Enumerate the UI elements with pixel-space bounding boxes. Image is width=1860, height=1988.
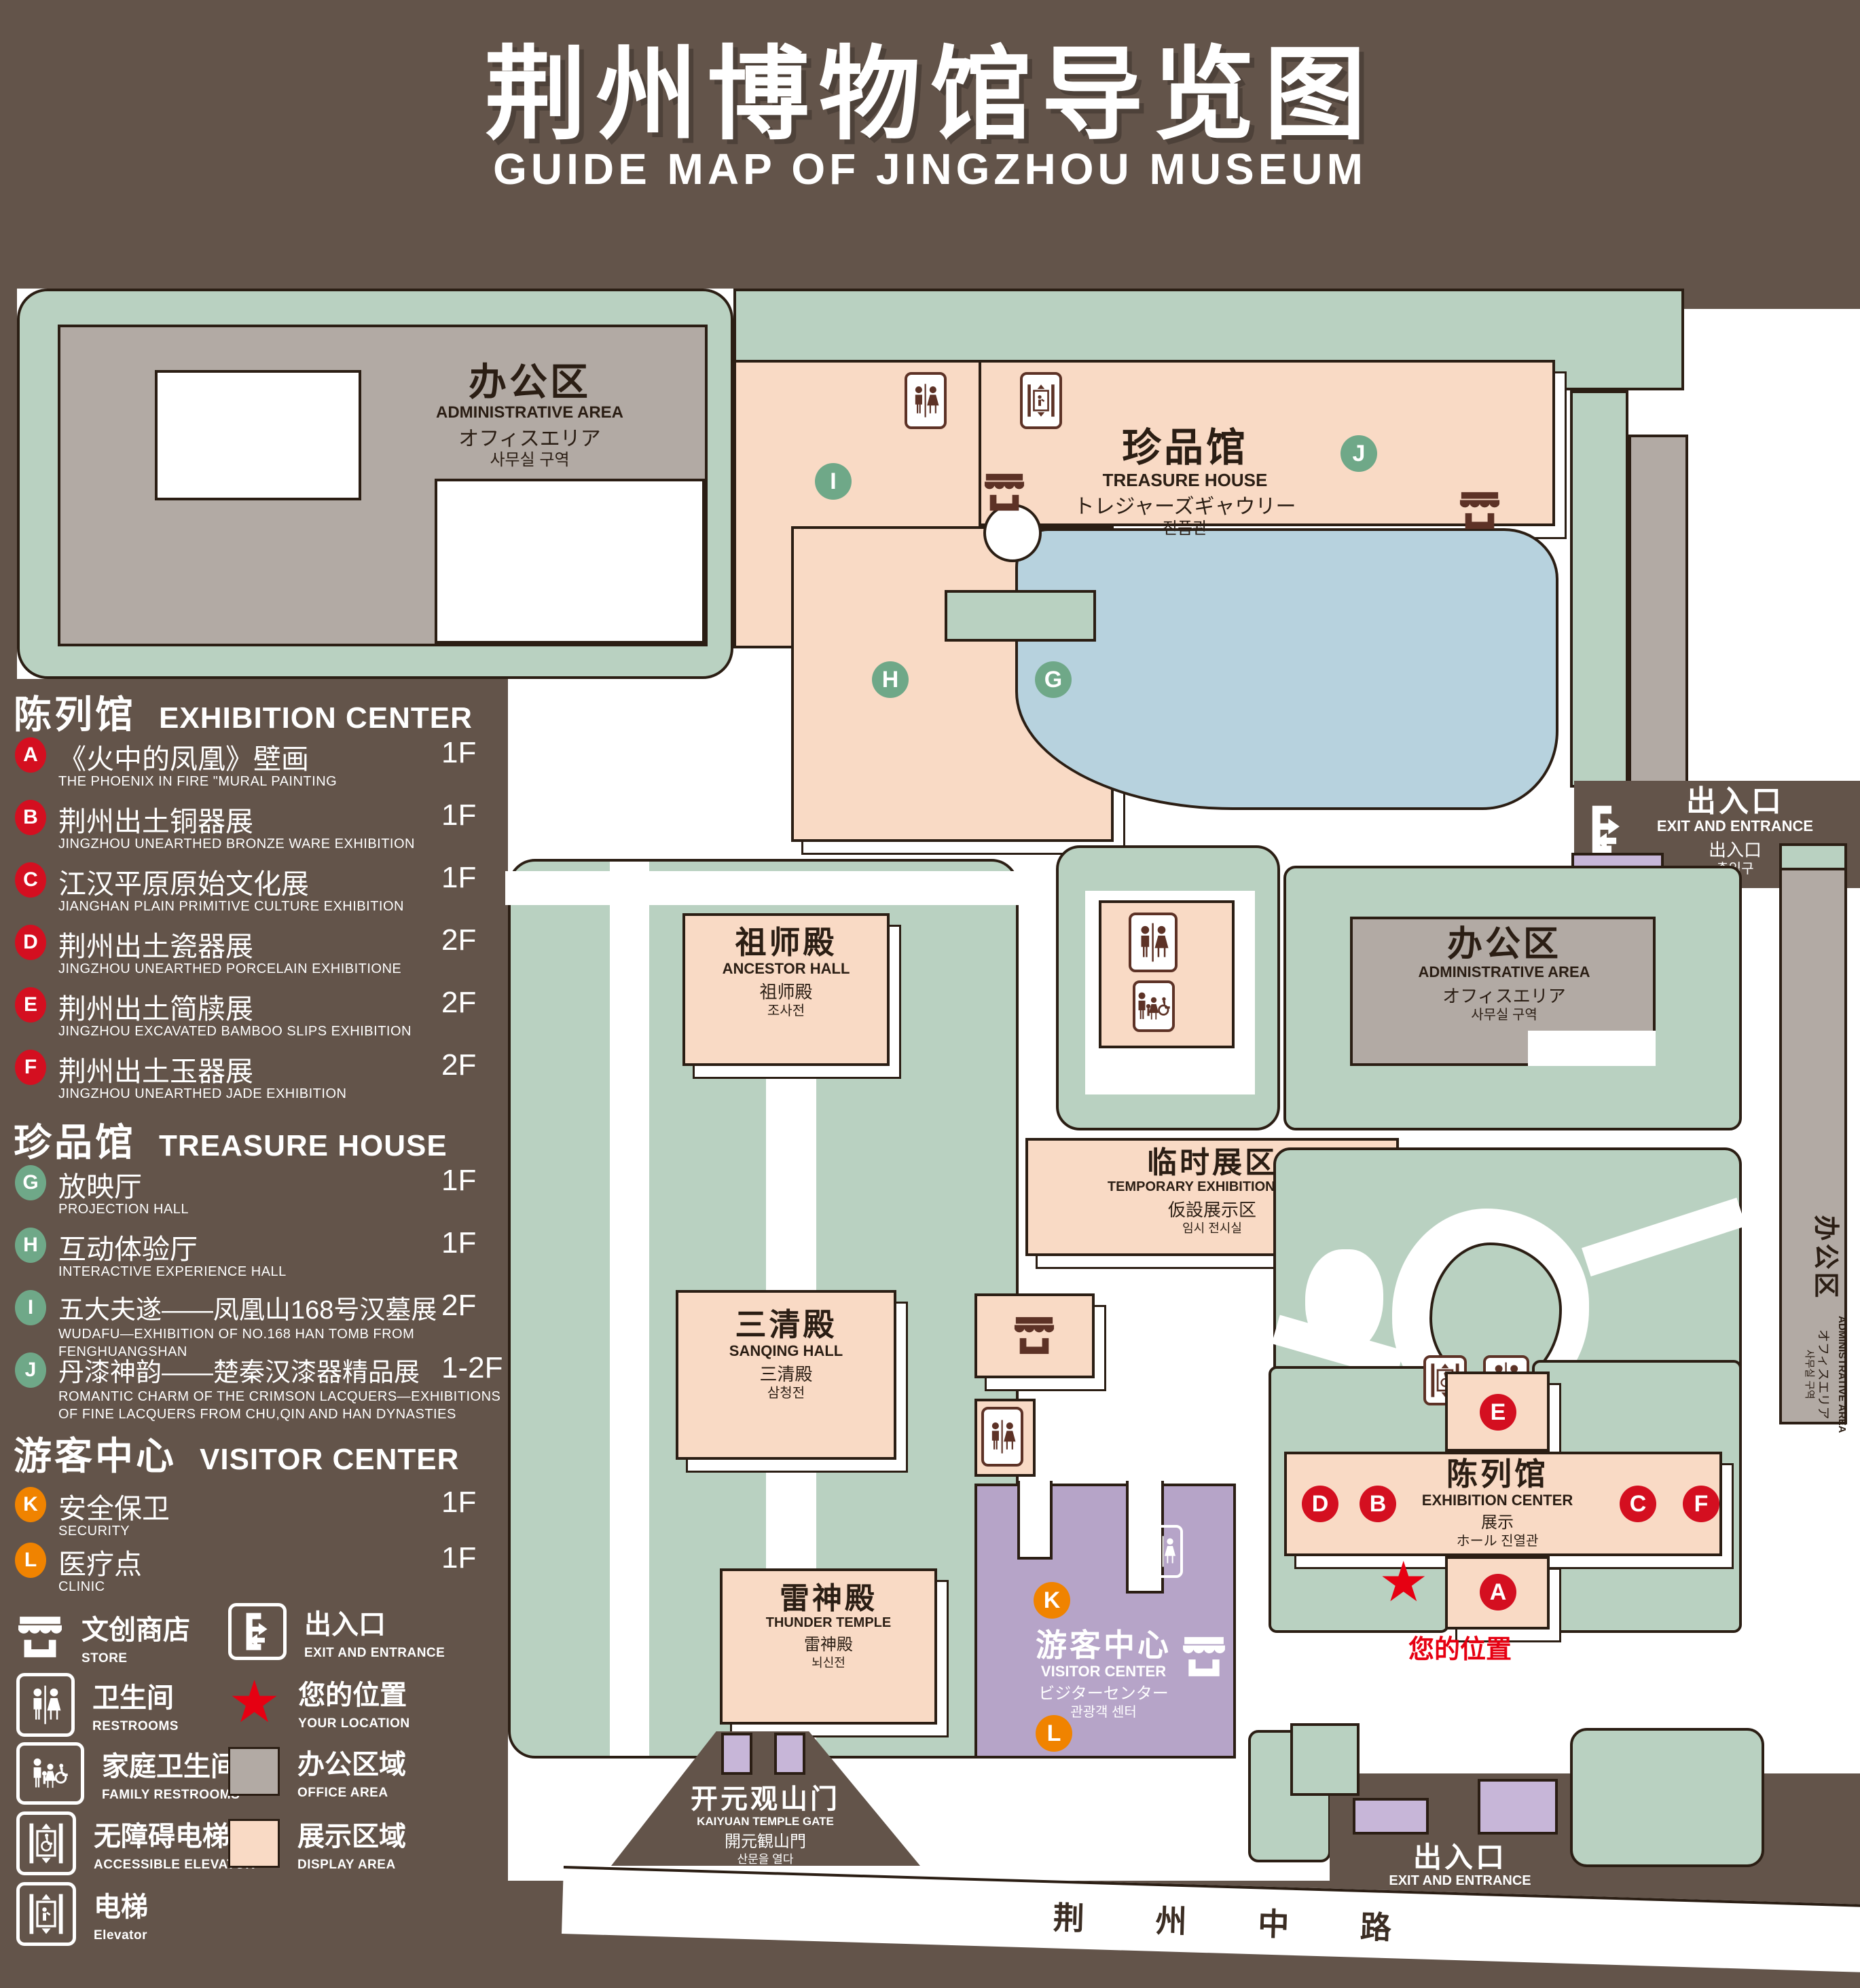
marker-G: G (1035, 661, 1072, 698)
legend-D-en: JINGZHOU UNEARTHED PORCELAIN EXHIBITIONE (58, 960, 401, 978)
label-sanqing-zh: 三清殿 (678, 1308, 894, 1343)
path-vertical-west (610, 862, 649, 1756)
label-gate-ko: 산문을 열다 (643, 1853, 888, 1866)
label-admin-strip-zh: 办公区 (1810, 1215, 1840, 1301)
elevator-icon (16, 1882, 76, 1946)
label-ancestor-zh: 祖师殿 (685, 925, 887, 961)
label-admin-nw-en: ADMINISTRATIVE AREA (380, 404, 679, 422)
label-admin-strip-en: ADMINISTRATIVE AREA (1836, 1316, 1847, 1433)
store-icon (1182, 1635, 1226, 1678)
label-treasure-zh: 珍品馆 (1015, 426, 1355, 471)
label-admin-east-ja: オフィスエリア (1355, 987, 1654, 1006)
legend-item-D: D 荆州出土瓷器展 2F JINGZHOU UNEARTHED PORCELAI… (14, 925, 516, 986)
green-block-gateeast (1570, 1728, 1764, 1867)
legend-display-zh: 展示区域 (297, 1822, 406, 1852)
legend-F-en: JINGZHOU UNEARTHED JADE EXHIBITION (58, 1085, 346, 1103)
label-admin-strip-ja: オフィスエリア (1816, 1316, 1830, 1433)
legend-E-floor: 2F (441, 986, 476, 1020)
legend-badge-F: F (15, 1050, 46, 1085)
legend-symbol-elevator: 电梯Elevator (16, 1882, 148, 1946)
legend-L-floor: 1F (441, 1541, 476, 1575)
gate-kaiyuan-door (721, 1733, 752, 1775)
legend-symbol-display: 展示区域DISPLAY AREA (228, 1814, 406, 1873)
legend-B-zh: 荆州出土铜器展 (58, 798, 253, 839)
lake-terrace (945, 590, 1096, 642)
legend-item-A: A 《火中的凤凰》壁画 1F THE PHOENIX IN FIRE "MURA… (14, 737, 516, 798)
label-thunder-ja: 雷神殿 (723, 1636, 934, 1655)
label-admin-nw-ja: オフィスエリア (380, 428, 679, 451)
legend-symbol-accessible: 无障碍电梯ACCESSIBLE ELEVATOR (16, 1811, 255, 1875)
legend-item-G: G 放映厅 1F PROJECTION HALL (14, 1165, 516, 1226)
store-icon (1013, 1315, 1055, 1356)
store-icon (1459, 490, 1501, 531)
legend-office-en: OFFICE AREA (297, 1786, 406, 1801)
legend-H-zh: 互动体验厅 (58, 1226, 198, 1267)
marker-L: L (1036, 1715, 1072, 1752)
legend-location-en: YOUR LOCATION (298, 1716, 409, 1731)
label-exit-ne-zh: 出入口 (1630, 785, 1840, 818)
label-admin-east-zh: 办公区 (1355, 925, 1654, 964)
legend-store-en: STORE (81, 1651, 190, 1666)
legend-elevator-en: Elevator (94, 1928, 148, 1943)
legend-section-exhibition-en: EXHIBITION CENTER (159, 701, 473, 735)
your-location-star-icon: ★ (228, 1673, 280, 1731)
legend-store-zh: 文创商店 (81, 1615, 190, 1645)
marker-E: E (1480, 1394, 1516, 1431)
your-location-label: 您的位置 (1379, 1628, 1542, 1665)
legend-item-I: I 五大夫遂——凤凰山168号汉墓展 2F WUDAFU—EXHIBITION … (14, 1290, 516, 1351)
legend-item-E: E 荆州出土简牍展 2F JINGZHOU EXCAVATED BAMBOO S… (14, 987, 516, 1048)
green-cap-east-strip (1779, 843, 1847, 870)
legend-item-K: K 安全保卫 1F SECURITY (14, 1487, 516, 1548)
legend-D-floor: 2F (441, 923, 476, 957)
legend-symbol-store: 文创商店STORE (16, 1608, 190, 1666)
exit-icon (228, 1603, 287, 1660)
legend-F-zh: 荆州出土玉器展 (58, 1048, 253, 1089)
label-ancestor-en: ANCESTOR HALL (685, 961, 887, 978)
label-treasure-en: TREASURE HOUSE (1015, 471, 1355, 490)
exit-icon (1580, 803, 1634, 857)
label-admin-east-ko: 사무실 구역 (1355, 1008, 1654, 1023)
legend-I-floor: 2F (441, 1289, 476, 1323)
legend-K-en: SECURITY (58, 1522, 130, 1540)
marker-B: B (1360, 1486, 1396, 1522)
building-thunder-temple: 雷神殿 THUNDER TEMPLE 雷神殿 뇌신전 (720, 1568, 937, 1725)
label-gate-en: KAIYUAN TEMPLE GATE (643, 1815, 888, 1828)
gate-kaiyuan-door (774, 1733, 805, 1775)
label-visitor-ko: 관광객 센터 (988, 1705, 1219, 1720)
legend-H-floor: 1F (441, 1226, 476, 1260)
gate-south-west (1353, 1798, 1429, 1835)
label-visitor-ja: ビジターセンター (988, 1685, 1219, 1704)
legend-badge-C: C (15, 862, 46, 898)
elevator-icon (1020, 372, 1062, 429)
marker-K: K (1034, 1582, 1070, 1619)
legend-badge-I: I (15, 1290, 46, 1325)
path-vertical-2 (766, 1463, 816, 1572)
legend-section-exhibition: 陈列馆 EXHIBITION CENTER (14, 684, 473, 739)
legend-J-zh: 丹漆神韵——楚秦汉漆器精品展 (58, 1351, 420, 1388)
accessible-elevator-icon (16, 1811, 76, 1875)
family-restroom-icon (1133, 980, 1175, 1032)
legend-section-treasure-zh: 珍品馆 (14, 1112, 136, 1167)
display-area-swatch (228, 1819, 280, 1868)
marker-D: D (1302, 1486, 1338, 1522)
legend-elevator-zh: 电梯 (94, 1892, 148, 1922)
legend-display-en: DISPLAY AREA (297, 1858, 406, 1873)
legend-item-B: B 荆州出土铜器展 1F JINGZHOU UNEARTHED BRONZE W… (14, 800, 516, 861)
label-treasure-ja: トレジャーズギャウリー (1015, 496, 1355, 519)
page-subtitle: GUIDE MAP OF JINGZHOU MUSEUM (0, 144, 1860, 194)
restroom-icon (16, 1673, 75, 1737)
legend-exit-en: EXIT AND ENTRANCE (304, 1646, 445, 1661)
legend-A-zh: 《火中的凤凰》壁画 (58, 736, 309, 777)
label-sanqing: 三清殿 SANQING HALL 三清殿 삼청전 (678, 1308, 894, 1401)
path-horizontal (505, 871, 1021, 905)
legend-K-floor: 1F (441, 1486, 476, 1520)
legend-section-visitor-en: VISITOR CENTER (200, 1443, 459, 1477)
office-area-swatch (228, 1747, 280, 1796)
legend-symbol-restrooms: 卫生间RESTROOMS (16, 1673, 179, 1737)
label-exit-south-zh: 出入口 (1355, 1841, 1565, 1873)
label-thunder: 雷神殿 THUNDER TEMPLE 雷神殿 뇌신전 (723, 1582, 934, 1670)
label-thunder-ko: 뇌신전 (723, 1656, 934, 1670)
your-location-star: ★ (1379, 1555, 1429, 1610)
legend-family-en: FAMILY RESTROOMS (102, 1788, 240, 1803)
label-exit-ne-en: EXIT AND ENTRANCE (1630, 818, 1840, 835)
label-sanqing-ko: 삼청전 (678, 1386, 894, 1401)
legend-item-L: L 医疗点 1F CLINIC (14, 1543, 516, 1604)
label-ancestor-ja: 祖师殿 (685, 982, 887, 1002)
label-admin-nw-zh: 办公区 (380, 361, 679, 404)
marker-I: I (815, 463, 852, 500)
marker-A: A (1480, 1574, 1516, 1610)
label-sanqing-ja: 三清殿 (678, 1365, 894, 1384)
legend-section-visitor-zh: 游客中心 (14, 1426, 177, 1481)
legend-symbol-family: 家庭卫生间FAMILY RESTROOMS (16, 1742, 240, 1805)
legend-B-en: JINGZHOU UNEARTHED BRONZE WARE EXHIBITIO… (58, 835, 415, 853)
legend-restrooms-en: RESTROOMS (92, 1719, 179, 1734)
family-restroom-icon (16, 1742, 84, 1805)
legend-C-floor: 1F (441, 861, 476, 895)
legend-badge-L: L (15, 1543, 46, 1578)
legend-badge-A: A (15, 737, 46, 773)
legend-A-en: THE PHOENIX IN FIRE "MURAL PAINTING (58, 773, 337, 790)
legend-badge-H: H (15, 1228, 46, 1263)
legend-C-zh: 江汉平原原始文化展 (58, 861, 309, 902)
label-admin-nw: 办公区 ADMINISTRATIVE AREA オフィスエリア 사무실 구역 (380, 361, 679, 470)
label-thunder-zh: 雷神殿 (723, 1582, 934, 1615)
admin-east-cutout (1528, 1031, 1656, 1066)
admin-nw-courtyard-cutout2 (435, 479, 705, 644)
legend-badge-B: B (15, 800, 46, 835)
legend-symbol-location: ★ 您的位置YOUR LOCATION (228, 1673, 410, 1731)
restroom-icon (1144, 1525, 1183, 1578)
label-gate-ja: 開元観山門 (643, 1833, 888, 1852)
legend-item-F: F 荆州出土玉器展 2F JINGZHOU UNEARTHED JADE EXH… (14, 1050, 516, 1111)
restroom-icon (905, 372, 947, 429)
legend-E-en: JINGZHOU EXCAVATED BAMBOO SLIPS EXHIBITI… (58, 1023, 412, 1040)
page-title: 荆州博物馆导览图 (0, 12, 1860, 160)
legend-G-zh: 放映厅 (58, 1164, 142, 1204)
legend-G-floor: 1F (441, 1164, 476, 1198)
legend-I-zh: 五大夫遂——凤凰山168号汉墓展 (58, 1289, 437, 1326)
marker-J: J (1341, 435, 1377, 472)
legend-J-floor: 1-2F (441, 1351, 503, 1385)
building-sanqing-hall: 三清殿 SANQING HALL 三清殿 삼청전 (676, 1290, 896, 1460)
legend-symbol-exit: 出入口EXIT AND ENTRANCE (228, 1602, 445, 1661)
marker-F: F (1683, 1486, 1719, 1522)
restroom-icon (1129, 913, 1178, 972)
label-treasure: 珍品馆 TREASURE HOUSE トレジャーズギャウリー 진품관 (1015, 426, 1355, 538)
legend-restrooms-zh: 卫生间 (92, 1683, 174, 1713)
building-ancestor-hall: 祖师殿 ANCESTOR HALL 祖师殿 조사전 (682, 913, 890, 1066)
green-column-ne (1570, 390, 1628, 788)
visitor-center-notch (1017, 1481, 1053, 1560)
label-sanqing-en: SANQING HALL (678, 1343, 894, 1360)
label-ancestor: 祖师殿 ANCESTOR HALL 祖师殿 조사전 (685, 925, 887, 1019)
legend-F-floor: 2F (441, 1048, 476, 1082)
legend-family-zh: 家庭卫生间 (102, 1752, 238, 1782)
path-vertical-1 (766, 1069, 816, 1293)
legend-J-en: ROMANTIC CHARM OF THE CRIMSON LACQUERS—E… (58, 1388, 500, 1423)
legend-location-zh: 您的位置 (298, 1680, 407, 1710)
label-exit-south-en: EXIT AND ENTRANCE (1355, 1873, 1565, 1888)
legend-badge-E: E (15, 987, 46, 1023)
legend-L-en: CLINIC (58, 1578, 105, 1596)
legend-L-zh: 医疗点 (58, 1541, 142, 1582)
legend-E-zh: 荆州出土简牍展 (58, 986, 253, 1027)
legend-item-H: H 互动体验厅 1F INTERACTIVE EXPERIENCE HALL (14, 1228, 516, 1289)
legend-section-treasure: 珍品馆 TREASURE HOUSE (14, 1112, 448, 1167)
green-block-gatewest (1290, 1723, 1360, 1796)
label-admin-east-en: ADMINISTRATIVE AREA (1355, 964, 1654, 981)
legend-K-zh: 安全保卫 (58, 1486, 170, 1526)
label-admin-strip-ko: 사무실 구역 (1803, 1316, 1815, 1433)
gray-column-ne (1628, 435, 1688, 788)
marker-H: H (872, 661, 909, 698)
label-ancestor-ko: 조사전 (685, 1004, 887, 1018)
legend-exit-zh: 出入口 (304, 1610, 386, 1640)
label-treasure-ko: 진품관 (1015, 520, 1355, 538)
lake (1015, 528, 1558, 810)
legend-item-C: C 江汉平原原始文化展 1F JIANGHAN PLAIN PRIMITIVE … (14, 862, 516, 923)
label-exhibition-ko: ホール 진열관 (1328, 1534, 1667, 1549)
legend-badge-K: K (15, 1487, 46, 1522)
label-admin-nw-ko: 사무실 구역 (380, 452, 679, 470)
label-admin-east: 办公区 ADMINISTRATIVE AREA オフィスエリア 사무실 구역 (1355, 925, 1654, 1023)
legend-D-zh: 荆州出土瓷器展 (58, 923, 253, 964)
label-gate-zh: 开元观山门 (643, 1784, 888, 1815)
legend-item-J: J 丹漆神韵——楚秦汉漆器精品展 1-2F ROMANTIC CHARM OF … (14, 1352, 516, 1434)
legend-badge-J: J (15, 1352, 46, 1388)
legend-H-en: INTERACTIVE EXPERIENCE HALL (58, 1263, 287, 1281)
admin-nw-courtyard-cutout (155, 370, 361, 500)
store-icon (16, 1615, 64, 1659)
label-thunder-en: THUNDER TEMPLE (723, 1615, 934, 1630)
legend-accessible-zh: 无障碍电梯 (94, 1822, 230, 1852)
label-gate: 开元观山门 KAIYUAN TEMPLE GATE 開元観山門 산문을 열다 (643, 1784, 888, 1866)
marker-C: C (1620, 1486, 1656, 1522)
legend-office-zh: 办公区域 (297, 1750, 406, 1780)
legend-C-en: JIANGHAN PLAIN PRIMITIVE CULTURE EXHIBIT… (58, 898, 404, 915)
legend-section-visitor: 游客中心 VISITOR CENTER (14, 1426, 459, 1481)
legend-G-en: PROJECTION HALL (58, 1200, 189, 1218)
legend-symbol-office: 办公区域OFFICE AREA (228, 1742, 406, 1801)
road-label: 荆 州 中 路 (1053, 1893, 1423, 1949)
legend-badge-D: D (15, 925, 46, 960)
legend-A-floor: 1F (441, 736, 476, 770)
legend-badge-G: G (15, 1165, 46, 1200)
gate-south-east (1478, 1779, 1558, 1835)
restroom-icon (981, 1407, 1023, 1467)
legend-section-treasure-en: TREASURE HOUSE (159, 1129, 448, 1163)
legend-section-exhibition-zh: 陈列馆 (14, 684, 136, 739)
label-admin-strip: 办公区 ADMINISTRATIVE AREA オフィスエリア 사무실 구역 (1779, 1154, 1847, 1494)
legend-B-floor: 1F (441, 798, 476, 832)
